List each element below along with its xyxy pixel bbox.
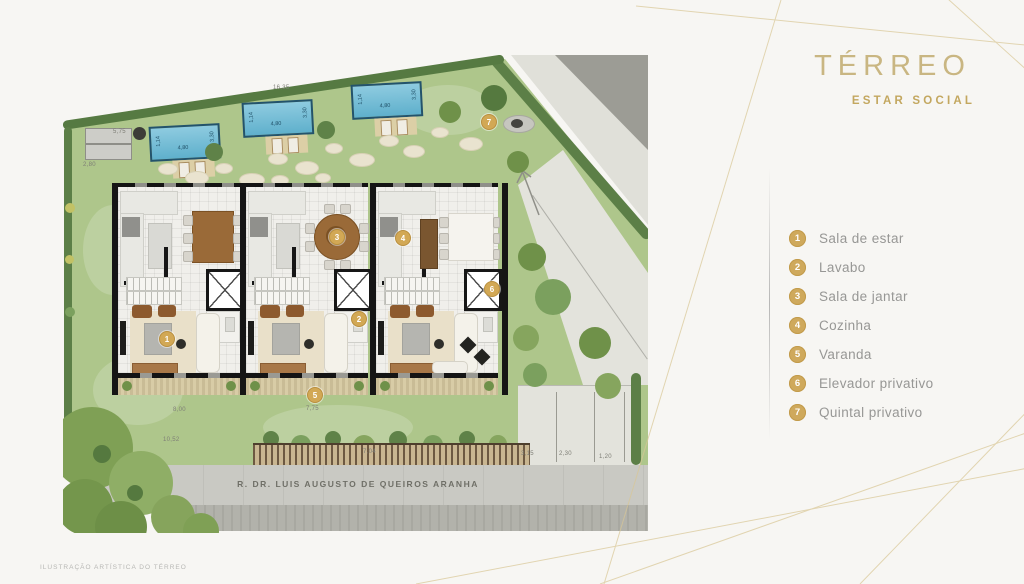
pool-dim-length: 4,80 <box>380 103 391 110</box>
chair <box>324 204 335 214</box>
deck-plant <box>380 381 390 391</box>
deck-plant <box>354 381 364 391</box>
pool-dim-width: 1,14 <box>248 112 255 123</box>
armchair <box>390 305 410 318</box>
chair <box>183 233 193 244</box>
chair <box>493 249 500 260</box>
flower-bush <box>65 255 74 264</box>
legend-label: Cozinha <box>819 318 871 333</box>
stone <box>459 137 483 151</box>
pool-dim-side: 3,30 <box>302 107 309 118</box>
dim-label: 1,20 <box>599 454 612 460</box>
deck-plant <box>250 381 260 391</box>
deck-plant <box>484 381 494 391</box>
chair <box>439 233 449 244</box>
pool: 1,14 4,80 3,30 <box>242 99 315 138</box>
parking-stall-line <box>594 392 595 462</box>
legend-label: Sala de estar <box>819 231 904 246</box>
tree <box>205 143 223 161</box>
legend-label: Sala de jantar <box>819 289 908 304</box>
deck-plant <box>226 381 236 391</box>
stone <box>325 143 343 154</box>
bush <box>65 307 75 317</box>
tv-panel <box>120 321 126 355</box>
flower-bush <box>65 203 75 213</box>
deck-plant <box>122 381 132 391</box>
private-elevator <box>206 269 244 311</box>
chair <box>493 217 500 228</box>
parking-area <box>518 385 640 466</box>
kitchen-counter <box>248 191 306 215</box>
pool-dim-side: 3,30 <box>411 89 418 100</box>
toilet <box>483 317 493 332</box>
unit-3 <box>376 183 498 395</box>
illustration-caption: ILUSTRAÇÃO ARTÍSTICA DO TÉRREO <box>40 564 187 571</box>
title-block: TÉRREO ESTAR SOCIAL <box>790 50 995 107</box>
tree-shadow-spot <box>93 445 111 463</box>
armchair <box>260 305 280 318</box>
kitchen-island <box>276 223 300 269</box>
dim-label: 8,00 <box>173 407 186 413</box>
tv-panel <box>378 321 384 355</box>
pool-dim-width: 1,14 <box>357 94 364 105</box>
armchair <box>132 305 152 318</box>
slide: 1,14 4,80 3,30 1,14 4,80 3,30 <box>0 0 1024 584</box>
tree <box>317 121 335 139</box>
coffee-table <box>272 323 300 355</box>
kitchen-appliance <box>122 217 140 237</box>
armchair <box>158 305 176 317</box>
boulder-dark <box>511 119 523 128</box>
stone <box>315 173 331 183</box>
lounger-mat <box>265 134 308 154</box>
legend-item: 2 Lavabo <box>789 253 1009 282</box>
lounger <box>271 138 283 155</box>
lounger-mat <box>374 116 417 136</box>
parking-stall-line <box>556 392 557 462</box>
legend-separator <box>769 168 770 440</box>
legend-item: 1 Sala de estar <box>789 224 1009 253</box>
varanda-deck <box>376 378 498 395</box>
dim-label: 7,75 <box>306 406 319 412</box>
stairs <box>384 277 440 291</box>
legend-item: 4 Cozinha <box>789 311 1009 340</box>
stone <box>431 127 449 138</box>
chair <box>340 204 351 214</box>
unit-2 <box>246 183 368 395</box>
dim-label: 10,52 <box>163 437 180 443</box>
chair <box>359 241 369 252</box>
legend-item: 3 Sala de jantar <box>789 282 1009 311</box>
legend-label: Lavabo <box>819 260 866 275</box>
legend-badge-4: 4 <box>789 317 806 334</box>
pool-deck <box>311 87 351 119</box>
street-name: R. DR. LUIS AUGUSTO DE QUEIROS ARANHA <box>168 479 548 489</box>
legend-badge-6: 6 <box>789 375 806 392</box>
pool-dim-width: 1,14 <box>155 136 162 147</box>
legend-badge-5: 5 <box>789 346 806 363</box>
parking-stall-line <box>624 392 625 462</box>
armchair <box>286 305 304 317</box>
marker-cozinha: 4 <box>395 230 411 246</box>
toilet <box>225 317 235 332</box>
tree <box>507 151 529 173</box>
site-plan-illustration: 1,14 4,80 3,30 1,14 4,80 3,30 <box>63 55 648 533</box>
dim-label: 7,04 <box>363 449 376 455</box>
marker-elevador-privativo: 6 <box>484 281 500 297</box>
ottoman <box>176 339 186 349</box>
unit-1 <box>118 183 240 395</box>
legend-badge-1: 1 <box>789 230 806 247</box>
kitchen-counter <box>120 191 178 215</box>
dim-label: 16,35 <box>273 85 290 91</box>
chair <box>359 223 369 234</box>
stairs <box>384 291 440 305</box>
chair <box>183 251 193 262</box>
hedge-left <box>64 127 72 427</box>
pool-dim-length: 4,80 <box>271 121 282 128</box>
marker-lavabo: 2 <box>351 311 367 327</box>
tree <box>481 85 507 111</box>
dim-label: 2,30 <box>559 451 572 457</box>
tree-shadow-spot <box>127 485 143 501</box>
chair <box>183 215 193 226</box>
sofa <box>196 313 220 373</box>
tree <box>439 101 461 123</box>
dining-table <box>192 211 234 263</box>
legend-label: Elevador privativo <box>819 376 934 391</box>
legend-label: Quintal privativo <box>819 405 923 420</box>
kitchen-counter <box>378 191 436 215</box>
legend-item: 6 Elevador privativo <box>789 369 1009 398</box>
kitchen-island <box>148 223 172 269</box>
stone <box>379 135 399 147</box>
armchair <box>416 305 434 317</box>
stairs <box>254 291 310 305</box>
lounger <box>380 120 392 137</box>
legend-badge-2: 2 <box>789 259 806 276</box>
marker-quintal-privativo: 7 <box>481 114 497 130</box>
tree <box>579 327 611 359</box>
ottoman <box>434 339 444 349</box>
sofa <box>324 313 348 373</box>
dining-table-white <box>448 213 494 261</box>
tv-panel <box>248 321 254 355</box>
stairs <box>126 291 182 305</box>
varanda-deck <box>118 378 240 395</box>
stone <box>158 163 178 175</box>
lounger <box>287 137 299 154</box>
chair <box>439 217 449 228</box>
pool-dim-length: 4,80 <box>178 145 189 152</box>
legend-item: 5 Varanda <box>789 340 1009 369</box>
stone <box>403 145 425 158</box>
coffee-table <box>402 323 430 355</box>
stairs <box>126 277 182 291</box>
chair <box>493 233 500 244</box>
private-elevator <box>334 269 372 311</box>
stone <box>349 153 375 167</box>
page-subtitle: ESTAR SOCIAL <box>832 95 995 107</box>
chair <box>305 241 315 252</box>
legend-item: 7 Quintal privativo <box>789 398 1009 427</box>
stairs <box>254 277 310 291</box>
building-wall <box>502 183 508 395</box>
tree <box>513 325 539 351</box>
dim-label: 5,75 <box>113 129 126 135</box>
chair <box>305 223 315 234</box>
pool-deck <box>202 105 242 137</box>
marker-varanda: 5 <box>307 387 323 403</box>
stone <box>268 153 288 165</box>
tree <box>518 243 546 271</box>
hedge-parking <box>631 373 641 465</box>
legend-badge-7: 7 <box>789 404 806 421</box>
tree <box>595 373 621 399</box>
ottoman <box>304 339 314 349</box>
stone <box>295 161 319 175</box>
tree <box>535 279 571 315</box>
lounger <box>396 119 408 136</box>
stone <box>215 163 233 174</box>
kitchen-appliance <box>250 217 268 237</box>
marker-sala-de-jantar: 3 <box>329 229 345 245</box>
legend-badge-3: 3 <box>789 288 806 305</box>
page-title: TÉRREO <box>790 50 995 83</box>
street-road <box>168 505 648 531</box>
tree <box>523 363 547 387</box>
marker-sala-de-estar: 1 <box>159 331 175 347</box>
kitchen-island-dark <box>420 219 438 269</box>
legend-label: Varanda <box>819 347 872 362</box>
dim-label: 2,80 <box>83 162 96 168</box>
chair <box>439 249 449 260</box>
legend: 1 Sala de estar 2 Lavabo 3 Sala de janta… <box>789 224 1009 427</box>
pool: 1,14 4,80 3,30 <box>351 81 424 120</box>
dim-label: 3,15 <box>521 451 534 457</box>
